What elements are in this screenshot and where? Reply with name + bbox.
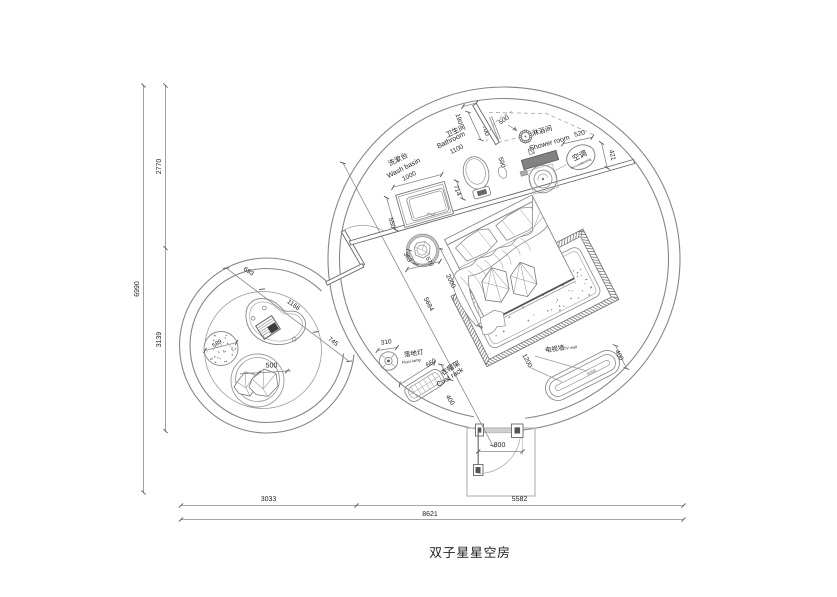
- svg-text:双子星星空房: 双子星星空房: [429, 545, 511, 560]
- svg-text:2770: 2770: [156, 159, 163, 175]
- svg-text:5582: 5582: [512, 496, 528, 503]
- svg-text:800: 800: [494, 442, 506, 449]
- svg-text:3139: 3139: [156, 332, 163, 348]
- svg-text:3033: 3033: [261, 496, 277, 503]
- svg-text:500: 500: [266, 363, 278, 370]
- svg-text:6990: 6990: [134, 281, 141, 297]
- svg-text:8621: 8621: [422, 511, 438, 518]
